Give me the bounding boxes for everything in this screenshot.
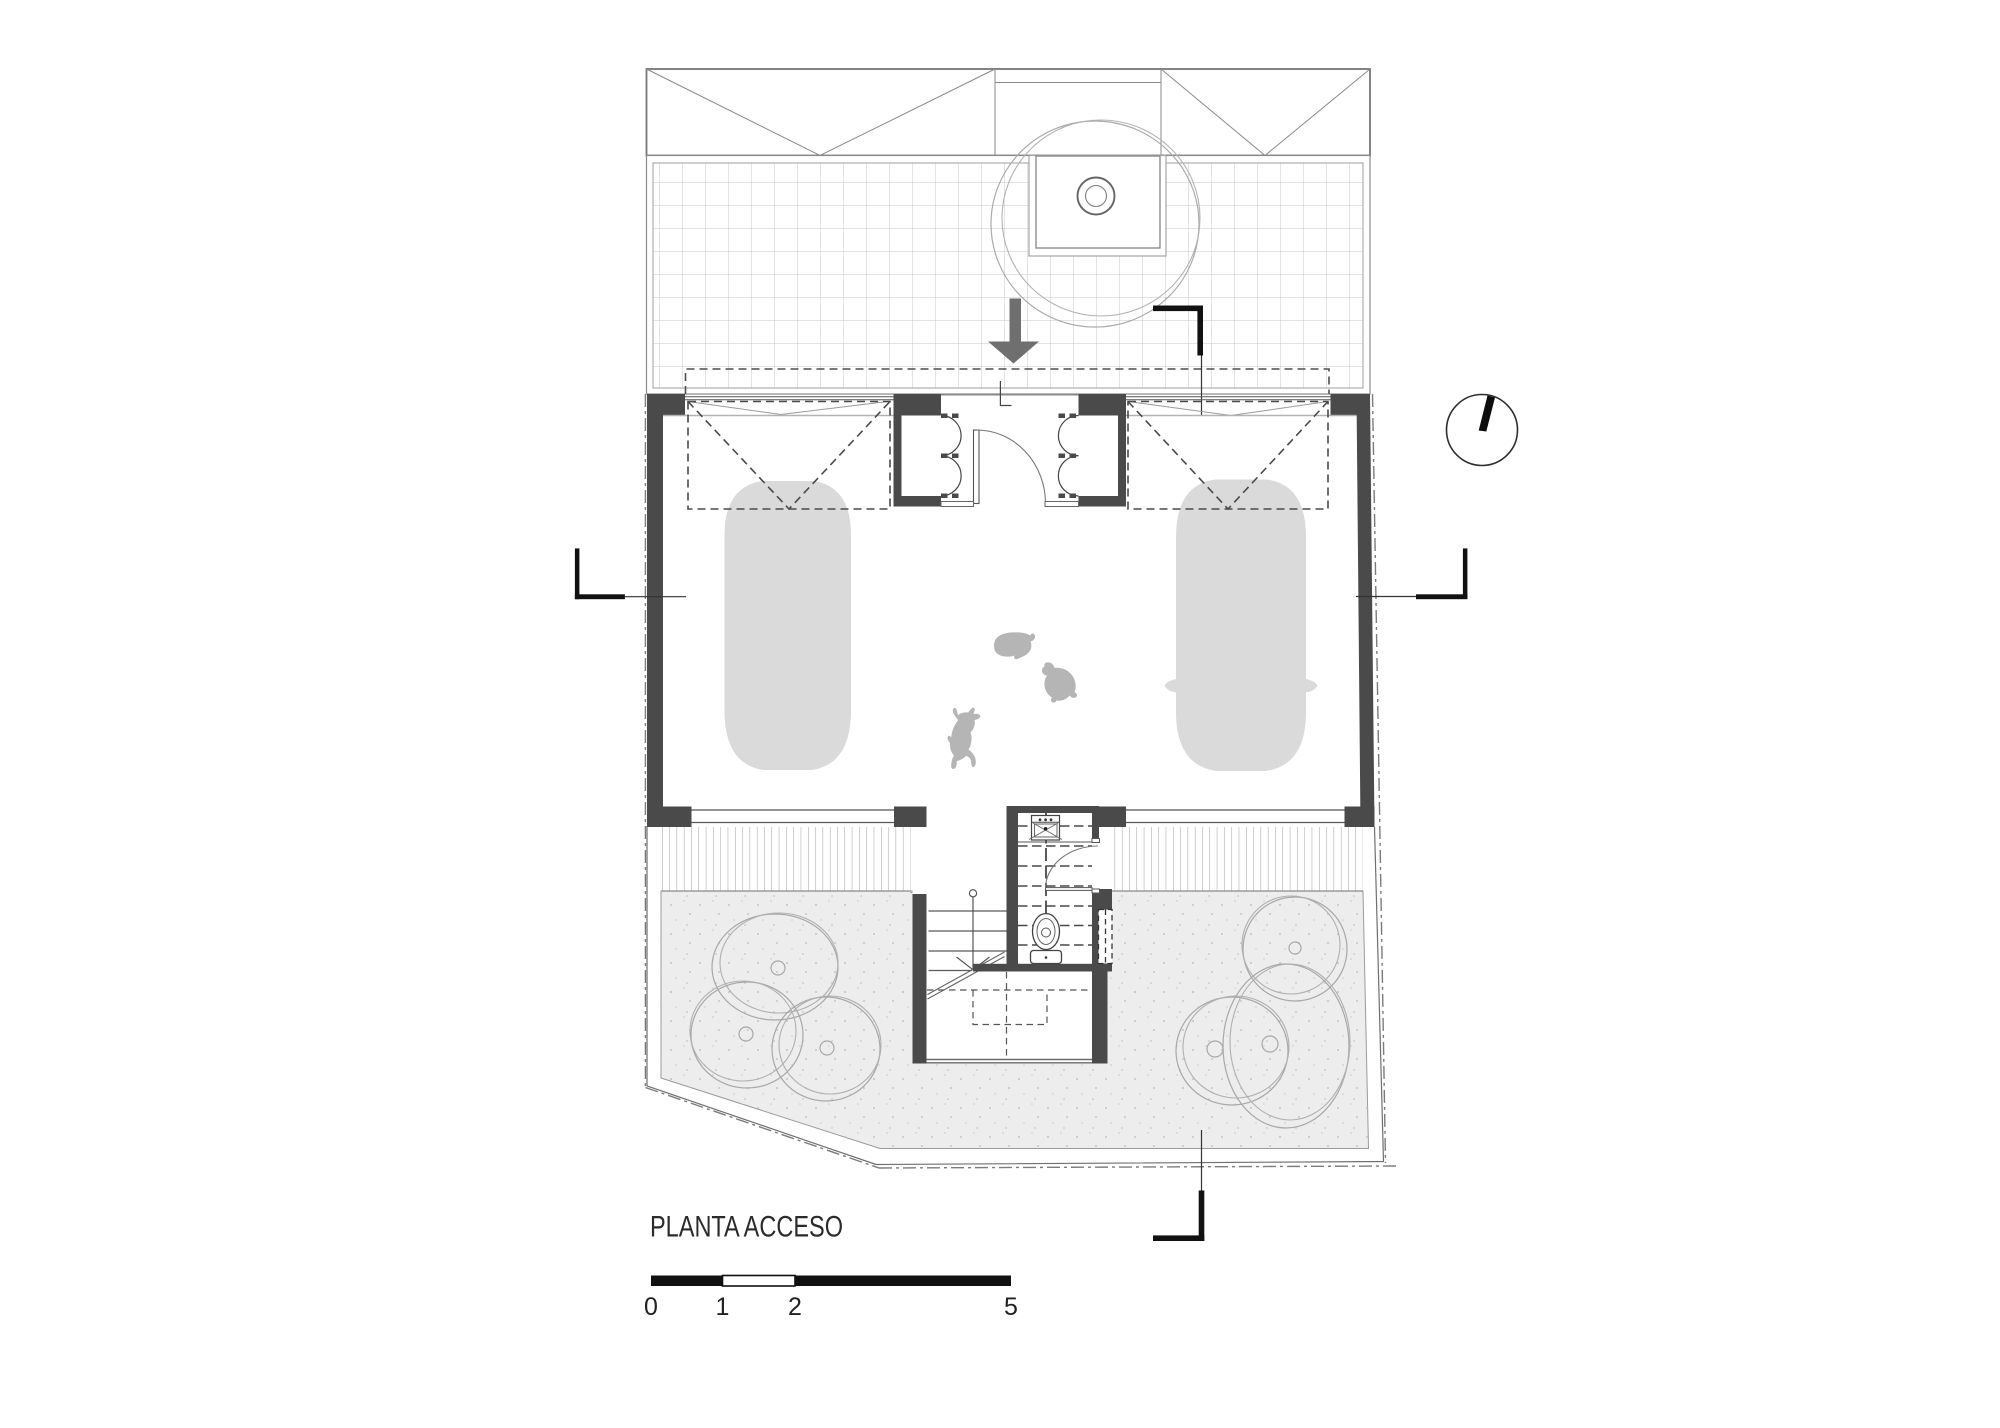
svg-text:PLANTA ACCESO: PLANTA ACCESO [650,1211,843,1244]
svg-text:0: 0 [644,1293,658,1321]
svg-text:2: 2 [788,1293,802,1321]
svg-text:5: 5 [1004,1293,1018,1321]
svg-text:1: 1 [716,1293,730,1321]
